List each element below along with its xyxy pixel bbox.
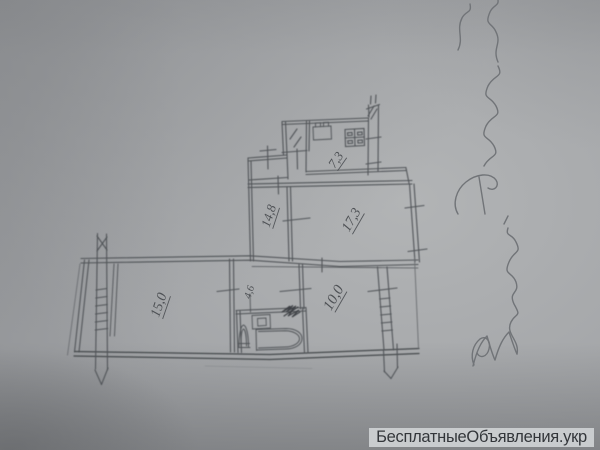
svg-text:14,8: 14,8 [258, 202, 279, 229]
svg-text:7,3: 7,3 [325, 148, 347, 170]
svg-text:4,6: 4,6 [243, 284, 258, 300]
